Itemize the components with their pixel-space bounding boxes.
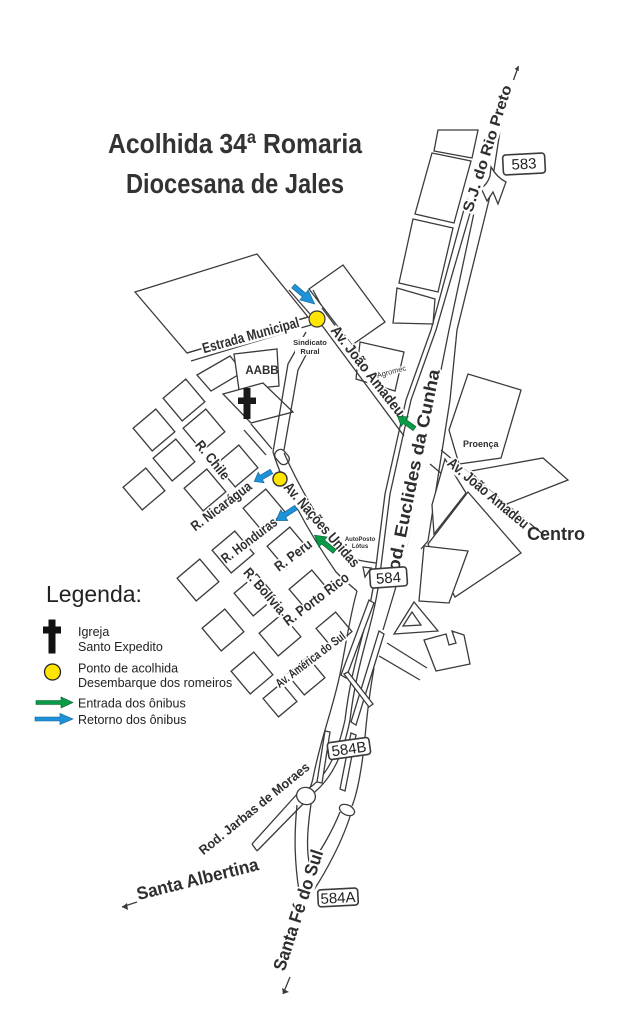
svg-text:Acolhida 34ª Romaria: Acolhida 34ª Romaria — [108, 128, 362, 159]
svg-text:Santa Fé do Sul: Santa Fé do Sul — [269, 847, 327, 973]
svg-text:Lótus: Lótus — [352, 544, 369, 550]
svg-text:Santa Albertina: Santa Albertina — [134, 854, 261, 904]
svg-text:Diocesana de Jales: Diocesana de Jales — [126, 168, 344, 199]
svg-text:Sindicato: Sindicato — [293, 338, 327, 347]
svg-text:584A: 584A — [320, 889, 356, 908]
svg-text:Legenda:: Legenda: — [46, 581, 142, 607]
svg-text:Entrada dos ônibus: Entrada dos ônibus — [78, 697, 186, 711]
svg-text:584: 584 — [375, 569, 401, 588]
svg-text:Igreja: Igreja — [78, 625, 109, 639]
svg-text:584B: 584B — [331, 739, 368, 761]
svg-text:Centro: Centro — [527, 524, 585, 544]
svg-text:Desembarque dos romeiros: Desembarque dos romeiros — [78, 676, 232, 690]
svg-text:583: 583 — [511, 155, 537, 173]
svg-text:Rural: Rural — [300, 347, 319, 356]
svg-text:Santo Expedito: Santo Expedito — [78, 640, 163, 654]
svg-text:Retorno dos ônibus: Retorno dos ônibus — [78, 713, 186, 727]
svg-text:Proença: Proença — [463, 439, 500, 449]
svg-text:Ponto de acolhida: Ponto de acolhida — [78, 662, 178, 676]
svg-text:AutoPosto: AutoPosto — [345, 537, 376, 543]
svg-text:AABB: AABB — [245, 365, 278, 377]
